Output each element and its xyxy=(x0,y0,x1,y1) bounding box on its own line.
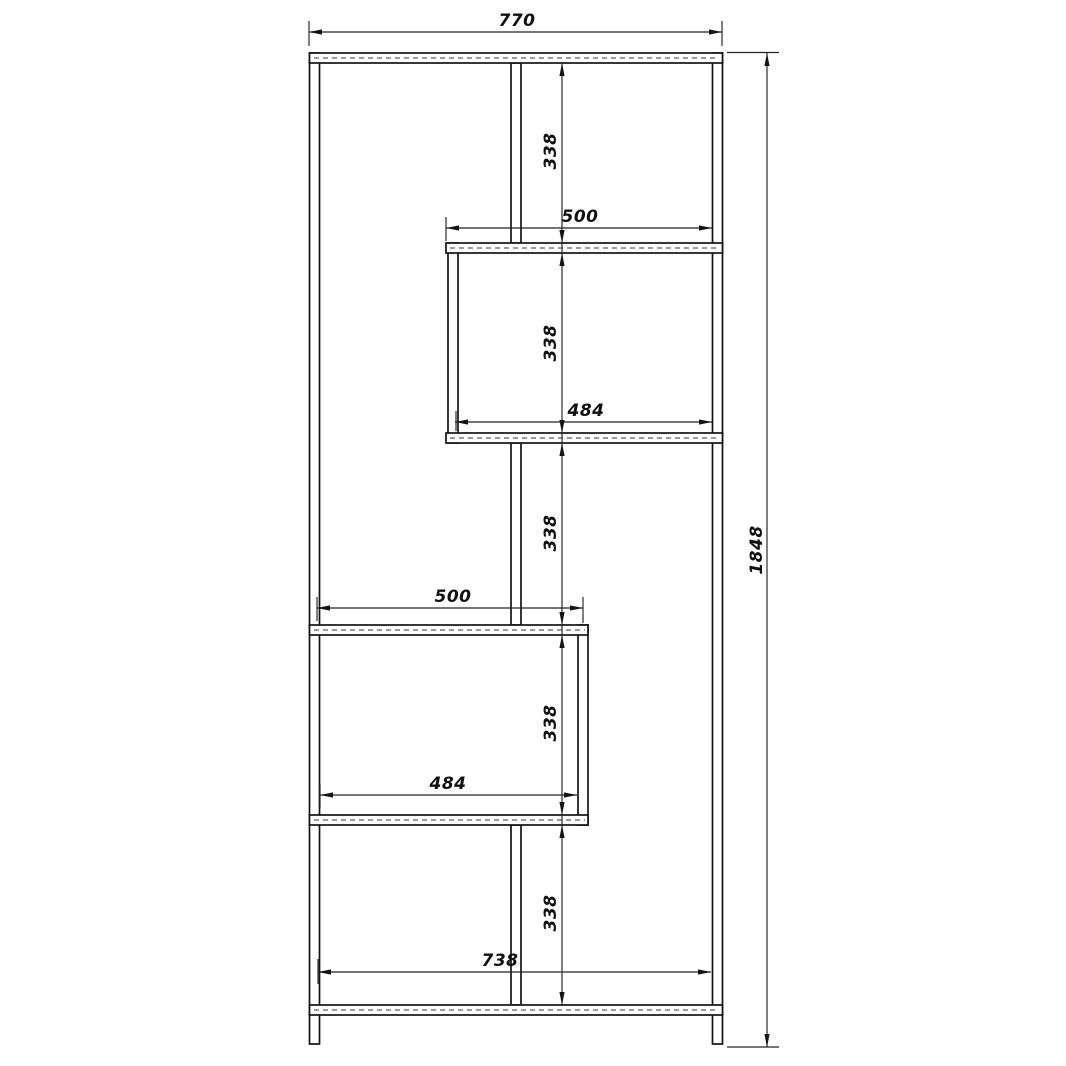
divider-top xyxy=(511,63,521,243)
dim-arrow xyxy=(559,825,564,838)
dim-label-height-1: 338 xyxy=(541,133,561,170)
dim-arrow xyxy=(559,230,564,243)
frame-left-upright xyxy=(310,53,320,1044)
dim-arrow xyxy=(699,419,712,424)
divider-bottom xyxy=(511,825,521,1005)
dimensions: 770 1848 500 484 500 484 xyxy=(309,11,779,1047)
dim-arrow xyxy=(559,635,564,648)
dim-arrow xyxy=(559,63,564,76)
dim-label-overall-height: 1848 xyxy=(747,525,767,574)
dim-label-height-2: 338 xyxy=(541,325,561,362)
frame-right-upright xyxy=(713,53,723,1044)
dim-label-right-compartment-inner: 484 xyxy=(567,401,605,421)
technical-drawing-canvas: 770 1848 500 484 500 484 xyxy=(0,0,1066,1066)
dim-arrow xyxy=(699,225,712,230)
dim-arrow xyxy=(559,443,564,456)
dim-arrow xyxy=(764,1034,769,1047)
dim-arrow xyxy=(559,802,564,815)
dim-label-height-4: 338 xyxy=(541,705,561,742)
dim-arrow xyxy=(764,53,769,66)
dim-arrow xyxy=(559,420,564,433)
dim-arrow xyxy=(564,792,577,797)
divider-middle xyxy=(511,443,521,625)
dim-arrow xyxy=(320,792,333,797)
dim-arrow xyxy=(559,992,564,1005)
dim-label-height-5: 338 xyxy=(541,895,561,932)
left-compartment-wall xyxy=(578,625,588,825)
dim-arrow xyxy=(559,612,564,625)
shelving-elevation-drawing: 770 1848 500 484 500 484 xyxy=(0,0,1066,1066)
dim-arrow xyxy=(570,605,583,610)
dim-label-overall-width: 770 xyxy=(499,11,536,31)
dim-label-left-compartment-width: 500 xyxy=(435,587,472,607)
structure xyxy=(310,53,723,1044)
dim-label-height-3: 338 xyxy=(541,515,561,552)
dim-label-right-compartment-width: 500 xyxy=(562,207,599,227)
dim-label-left-compartment-inner: 484 xyxy=(429,774,467,794)
dim-arrow xyxy=(559,253,564,266)
dim-label-bottom-inner-width: 738 xyxy=(482,951,519,971)
dim-arrow xyxy=(709,29,722,34)
dim-arrow xyxy=(698,969,711,974)
dim-arrow xyxy=(446,225,459,230)
dim-arrow xyxy=(309,29,322,34)
